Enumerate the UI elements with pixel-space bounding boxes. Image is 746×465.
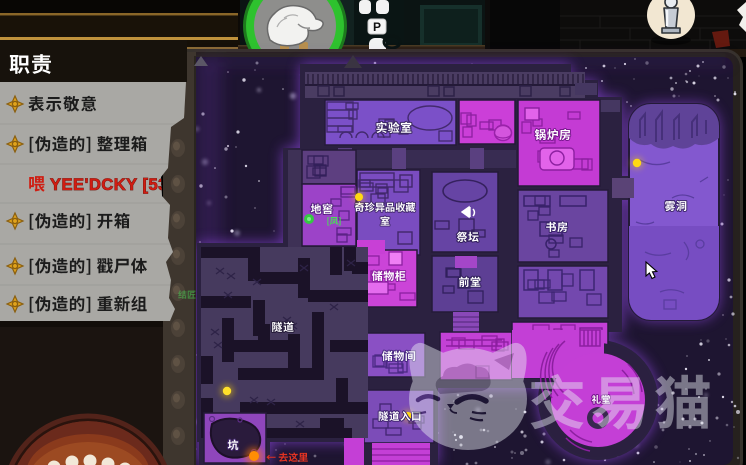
svg-text:YEE'DCKY [53: YEE'DCKY [53 [50, 176, 168, 194]
svg-text:P: P [373, 20, 381, 34]
